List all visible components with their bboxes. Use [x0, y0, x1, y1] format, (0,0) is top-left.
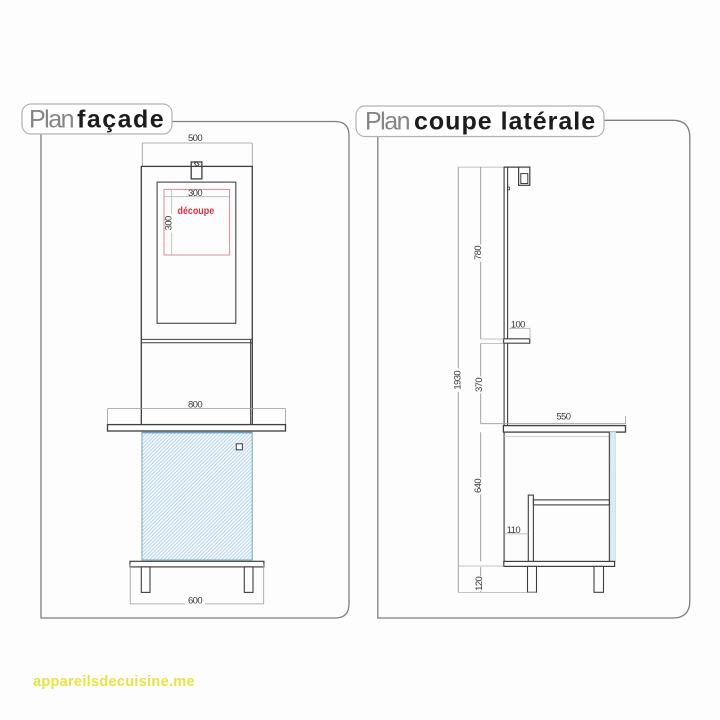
svg-text:300: 300 [188, 188, 202, 199]
svg-text:Plan: Plan [29, 106, 74, 134]
svg-text:500: 500 [188, 133, 202, 144]
svg-text:800: 800 [188, 400, 202, 411]
svg-text:100: 100 [511, 319, 525, 330]
svg-text:600: 600 [188, 595, 202, 606]
svg-text:640: 640 [473, 479, 484, 493]
svg-text:550: 550 [556, 411, 570, 422]
svg-text:1930: 1930 [453, 371, 464, 390]
svg-text:370: 370 [474, 378, 485, 392]
svg-text:façade: façade [77, 106, 165, 134]
svg-text:300: 300 [164, 216, 175, 230]
svg-text:appareilsdecuisine.me: appareilsdecuisine.me [33, 674, 195, 690]
svg-text:Plan: Plan [365, 108, 410, 136]
svg-text:découpe: découpe [178, 205, 215, 217]
svg-text:780: 780 [473, 246, 484, 260]
svg-text:coupe latérale: coupe latérale [414, 108, 596, 136]
svg-text:110: 110 [507, 525, 521, 536]
svg-text:120: 120 [474, 576, 485, 590]
